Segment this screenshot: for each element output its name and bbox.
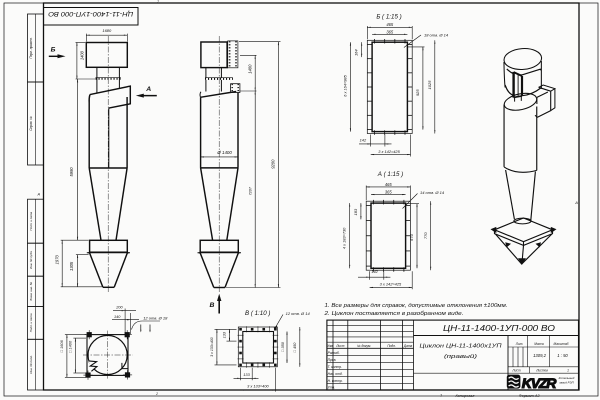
svg-text:Б: Б: [51, 47, 56, 54]
svg-text:7: 7: [157, 0, 159, 4]
svg-text:Масса: Масса: [534, 342, 544, 346]
svg-text:18 отв. Ø 14: 18 отв. Ø 14: [424, 32, 449, 37]
svg-text:200: 200: [115, 306, 123, 310]
svg-text:□ 350: □ 350: [281, 341, 285, 352]
svg-text:В: В: [210, 302, 215, 309]
svg-text:140: 140: [114, 315, 121, 319]
svg-text:164: 164: [354, 49, 359, 56]
svg-text:Пров.: Пров.: [328, 358, 337, 362]
svg-text:133: 133: [243, 372, 250, 377]
svg-text:А: А: [574, 200, 578, 205]
svg-text:925: 925: [415, 89, 420, 96]
svg-text:А ( 1:15 ): А ( 1:15 ): [377, 171, 403, 178]
svg-text:Ø 1400: Ø 1400: [216, 150, 232, 155]
svg-text:1. Все размеры для справок, д: 1. Все размеры для справок, допустимые о…: [325, 303, 508, 309]
svg-text:Справ. №: Справ. №: [29, 116, 33, 131]
svg-text:Изм: Изм: [327, 344, 334, 348]
svg-text:Б ( 1:15 ): Б ( 1:15 ): [376, 14, 401, 21]
svg-text:□ 450: □ 450: [293, 342, 297, 353]
svg-text:Подп.: Подп.: [387, 344, 396, 348]
svg-text:Копировал: Копировал: [455, 394, 475, 398]
svg-text:(правый): (правый): [444, 353, 477, 360]
svg-text:Перв. примен.: Перв. примен.: [29, 37, 33, 58]
svg-text:12 отв. Ø 18: 12 отв. Ø 18: [143, 316, 168, 321]
svg-text:Утв.: Утв.: [328, 385, 336, 389]
svg-text:Инв. № дубл.: Инв. № дубл.: [29, 250, 33, 269]
svg-text:1309,2: 1309,2: [533, 353, 546, 358]
svg-text:770: 770: [423, 232, 428, 239]
svg-text:142: 142: [360, 138, 367, 143]
svg-text:1025: 1025: [427, 80, 432, 90]
svg-text:KVZR: KVZR: [522, 375, 557, 391]
svg-text:Подп. и дата: Подп. и дата: [29, 313, 33, 332]
svg-text:ЦН-11-1400-1УП-000 ВО: ЦН-11-1400-1УП-000 ВО: [48, 10, 133, 17]
svg-text:2: 2: [155, 392, 158, 396]
svg-text:465: 465: [385, 182, 393, 187]
svg-text:Листов: Листов: [535, 369, 548, 373]
svg-text:Разраб.: Разраб.: [328, 351, 340, 355]
svg-text:1 : 50: 1 : 50: [557, 353, 568, 358]
svg-text:А: А: [36, 192, 40, 197]
svg-text:9200: 9200: [271, 159, 276, 169]
svg-text:Подп. и дата: Подп. и дата: [29, 211, 33, 230]
svg-text:Т. контр.: Т. контр.: [328, 365, 342, 369]
svg-text:Дата: Дата: [403, 344, 413, 348]
svg-text:5990: 5990: [69, 167, 74, 177]
svg-text:183: 183: [353, 208, 358, 215]
svg-text:Лит.: Лит.: [515, 342, 524, 346]
svg-text:№ докум.: № докум.: [357, 344, 371, 348]
svg-text:Нач. отд.: Нач. отд.: [328, 372, 343, 376]
svg-text:3 x 142=425: 3 x 142=425: [378, 149, 400, 154]
svg-text:6 x 164=985: 6 x 164=985: [342, 74, 347, 96]
svg-text:1305: 1305: [69, 261, 74, 271]
svg-text:4 x 183=730: 4 x 183=730: [342, 227, 347, 249]
svg-text:А: А: [145, 86, 151, 93]
svg-text:365: 365: [385, 190, 393, 195]
svg-text:133: 133: [222, 331, 226, 338]
svg-text:Масштаб: Масштаб: [554, 342, 569, 346]
svg-text:Н. контр.: Н. контр.: [328, 379, 343, 383]
svg-text:1: 1: [567, 369, 569, 373]
svg-text:14 отв. Ø 14: 14 отв. Ø 14: [420, 190, 445, 195]
svg-text:3 x 133=400: 3 x 133=400: [247, 383, 269, 388]
svg-text:Лист: Лист: [335, 344, 345, 348]
svg-text:7207: 7207: [249, 186, 253, 195]
svg-text:670: 670: [409, 233, 414, 240]
svg-text:1970: 1970: [54, 255, 59, 265]
svg-text:Котельный: Котельный: [559, 376, 575, 380]
svg-text:1680: 1680: [102, 28, 112, 33]
svg-text:365: 365: [386, 29, 394, 34]
svg-text:завод РЭП: завод РЭП: [558, 381, 574, 385]
svg-text:В ( 1:10 ): В ( 1:10 ): [245, 310, 270, 317]
svg-text:142: 142: [371, 269, 378, 274]
svg-text:□ 1606: □ 1606: [59, 339, 64, 352]
svg-text:□ 1400: □ 1400: [67, 340, 72, 353]
svg-text:3 x 133=400: 3 x 133=400: [210, 337, 214, 356]
svg-text:1: 1: [440, 394, 442, 398]
svg-text:Лист: Лист: [511, 369, 521, 373]
svg-text:2. Циклон поставляется в разо: 2. Циклон поставляется в разобранном вид…: [323, 311, 463, 317]
svg-text:ЦН-11-1400-1УП-000 ВО: ЦН-11-1400-1УП-000 ВО: [443, 324, 555, 333]
svg-text:1400: 1400: [80, 50, 85, 60]
svg-text:12 отв. Ø 14: 12 отв. Ø 14: [286, 311, 311, 316]
svg-text:465: 465: [386, 22, 394, 27]
svg-text:Формат А3: Формат А3: [519, 394, 541, 398]
svg-text:Инв. № подл.: Инв. № подл.: [29, 355, 33, 374]
svg-text:3 x 142=425: 3 x 142=425: [380, 282, 402, 287]
svg-text:1400: 1400: [248, 64, 253, 74]
svg-text:Циклон ЦН-11-1400х1УП: Циклон ЦН-11-1400х1УП: [420, 344, 503, 350]
svg-text:Взам. инв. №: Взам. инв. №: [29, 281, 33, 300]
